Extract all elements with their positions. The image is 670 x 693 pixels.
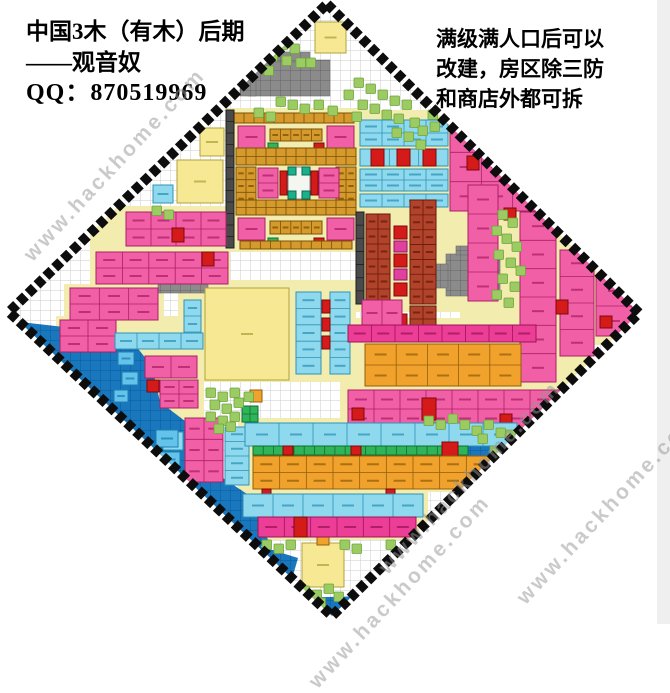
note-line-3: 和商店外都可拆 [436,84,604,114]
note-line-1: 满级满人口后可以 [436,24,604,54]
page-root: 中国3木（有木）后期 ——观音奴 QQ：870519969 满级满人口后可以 改… [0,0,670,624]
note-line-2: 改建，房区除三防 [436,54,604,84]
qq-line: QQ：870519969 [26,78,245,109]
author-line: ——观音奴 [26,47,245,78]
title-block: 中国3木（有木）后期 ——观音奴 QQ：870519969 [26,16,245,109]
layout-title: 中国3木（有木）后期 [26,16,245,47]
note-block: 满级满人口后可以 改建，房区除三防 和商店外都可拆 [436,24,604,114]
